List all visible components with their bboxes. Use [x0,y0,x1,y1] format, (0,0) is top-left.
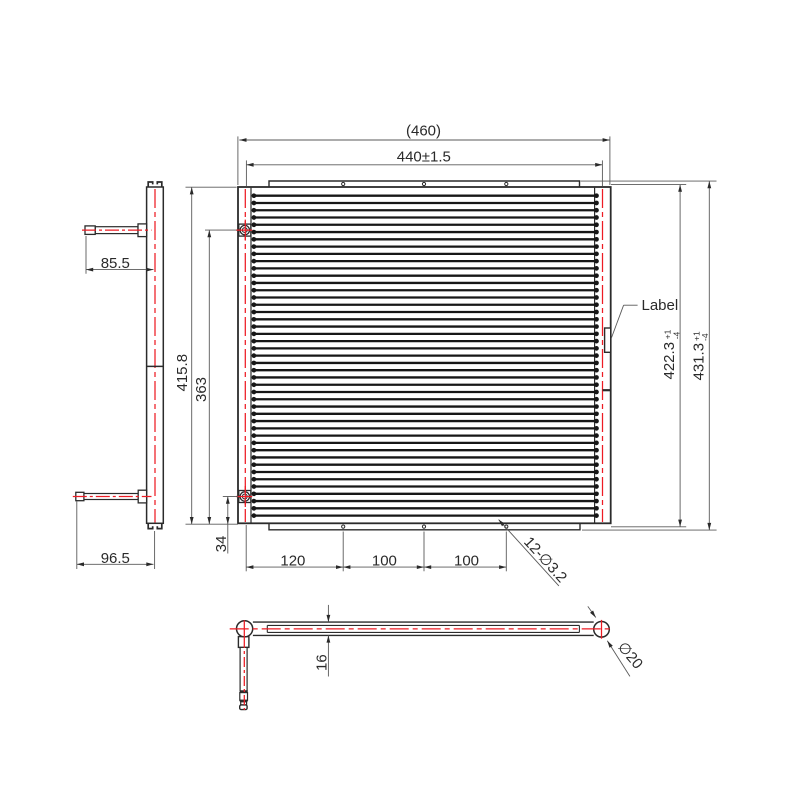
svg-text:-4: -4 [671,331,681,339]
svg-text:440±1.5: 440±1.5 [397,148,451,165]
svg-text:(460): (460) [406,122,441,139]
svg-text:422.3: 422.3 [661,342,678,380]
svg-text:100: 100 [454,552,479,569]
svg-text:100: 100 [372,552,397,569]
svg-text:120: 120 [280,552,305,569]
svg-text:415.8: 415.8 [174,354,191,392]
svg-text:-4: -4 [700,333,710,341]
svg-text:431.3: 431.3 [690,343,707,381]
svg-text:34: 34 [213,536,230,553]
svg-text:96.5: 96.5 [101,550,130,567]
svg-text:363: 363 [193,377,210,402]
svg-text:85.5: 85.5 [101,255,130,272]
svg-text:16: 16 [313,654,330,671]
svg-text:Label: Label [642,297,679,314]
